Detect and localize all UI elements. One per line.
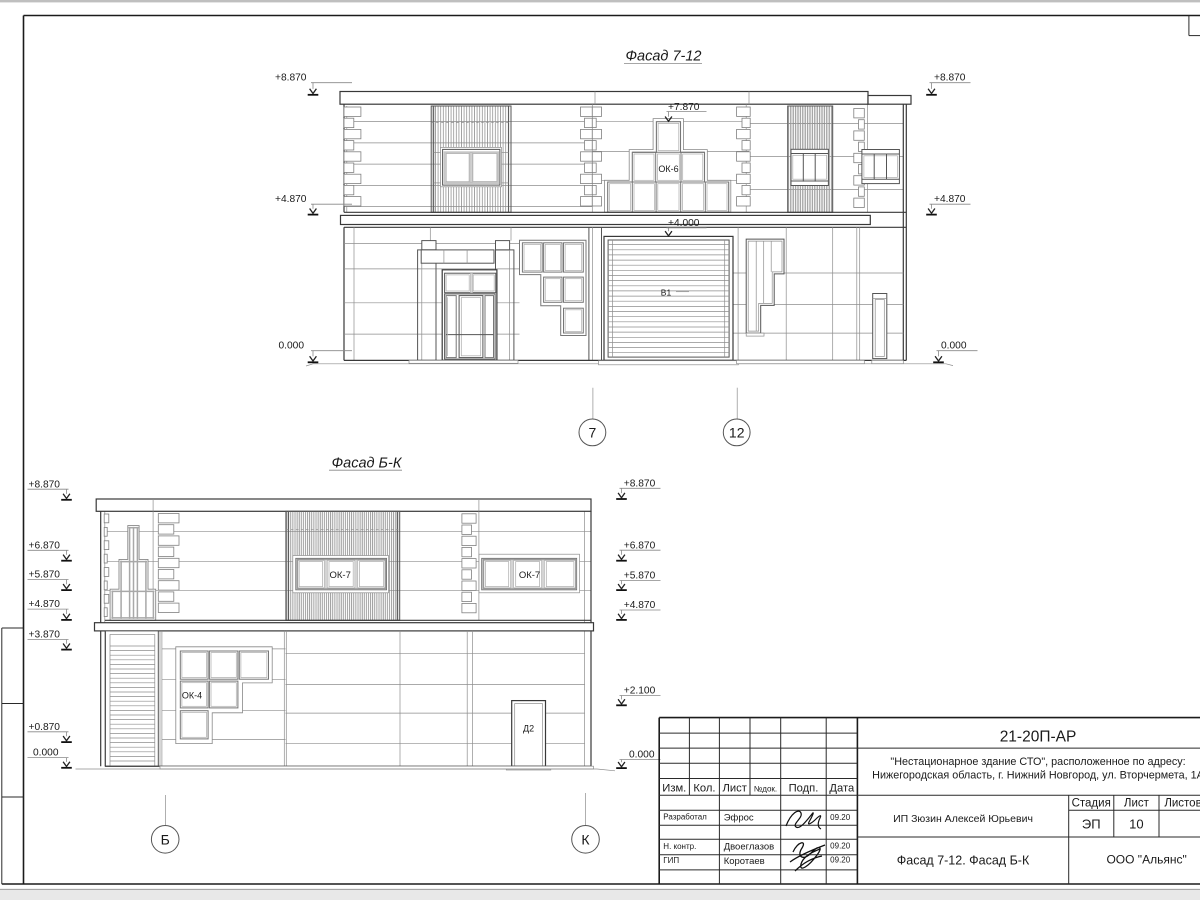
svg-text:ОК-4: ОК-4 — [182, 691, 202, 701]
svg-text:Фасад 7-12: Фасад 7-12 — [626, 49, 702, 65]
svg-text:Листов: Листов — [1164, 798, 1200, 810]
svg-text:Кол.: Кол. — [693, 783, 715, 795]
svg-text:10: 10 — [1129, 817, 1143, 832]
svg-text:+4.870: +4.870 — [934, 194, 966, 205]
svg-text:+4.000: +4.000 — [668, 218, 700, 229]
svg-text:0.000: 0.000 — [33, 748, 59, 759]
svg-text:ОК-7: ОК-7 — [330, 570, 351, 581]
svg-text:+5.870: +5.870 — [624, 571, 656, 582]
svg-text:Фасад Б-К: Фасад Б-К — [332, 456, 403, 472]
svg-text:ООО "Альянс": ООО "Альянс" — [1106, 853, 1186, 867]
svg-text:Н. контр.: Н. контр. — [663, 842, 696, 851]
svg-text:+0.870: +0.870 — [29, 722, 61, 733]
svg-text:Фасад 7-12. Фасад Б-К: Фасад 7-12. Фасад Б-К — [897, 854, 1030, 868]
svg-text:+6.870: +6.870 — [29, 540, 61, 551]
svg-text:7: 7 — [589, 424, 597, 440]
svg-text:+8.870: +8.870 — [29, 479, 61, 490]
svg-text:+3.870: +3.870 — [29, 630, 61, 641]
svg-text:Разработал: Разработал — [663, 813, 707, 822]
svg-text:+2.100: +2.100 — [624, 686, 656, 697]
svg-text:Лист: Лист — [723, 783, 747, 795]
svg-text:09.20: 09.20 — [830, 855, 851, 864]
svg-text:Двоеглазов: Двоеглазов — [724, 842, 775, 853]
svg-text:+8.870: +8.870 — [624, 478, 656, 489]
svg-text:09.20: 09.20 — [830, 813, 851, 822]
svg-text:Изм.: Изм. — [662, 783, 686, 795]
svg-text:К: К — [581, 831, 590, 847]
svg-text:Подп.: Подп. — [789, 783, 819, 795]
svg-text:Стадия: Стадия — [1072, 798, 1111, 810]
svg-text:+6.870: +6.870 — [624, 540, 656, 551]
svg-text:Б: Б — [161, 831, 170, 847]
svg-text:Лист: Лист — [1124, 798, 1150, 810]
svg-text:ГИП: ГИП — [663, 856, 679, 865]
svg-text:+4.870: +4.870 — [624, 600, 656, 611]
svg-text:+8.870: +8.870 — [934, 73, 966, 84]
svg-text:В1: В1 — [661, 287, 672, 297]
svg-text:0.000: 0.000 — [941, 341, 967, 352]
svg-text:ОК-6: ОК-6 — [658, 164, 678, 174]
svg-text:"Нестационарное здание СТО", р: "Нестационарное здание СТО", расположенн… — [890, 756, 1185, 768]
svg-text:+4.870: +4.870 — [275, 194, 307, 205]
svg-text:12: 12 — [729, 424, 745, 440]
svg-text:Дата: Дата — [829, 783, 855, 795]
svg-text:Эфрос: Эфрос — [724, 812, 754, 823]
svg-text:ИП Зюзин Алексей Юрьевич: ИП Зюзин Алексей Юрьевич — [893, 813, 1033, 825]
svg-text:ОК-7: ОК-7 — [519, 570, 540, 581]
svg-text:+4.870: +4.870 — [29, 599, 61, 610]
svg-text:+5.870: +5.870 — [29, 570, 61, 581]
svg-text:21-20П-АР: 21-20П-АР — [1000, 729, 1077, 746]
svg-text:№док.: №док. — [754, 784, 777, 793]
svg-text:Коротаев: Коротаев — [724, 856, 765, 867]
svg-text:Нижегородская область, г. Нижн: Нижегородская область, г. Нижний Новгоро… — [872, 769, 1200, 781]
svg-text:0.000: 0.000 — [279, 341, 305, 352]
svg-text:0.000: 0.000 — [629, 750, 655, 761]
svg-text:+8.870: +8.870 — [275, 73, 307, 84]
svg-text:Д2: Д2 — [523, 724, 534, 734]
svg-text:ЭП: ЭП — [1082, 817, 1101, 832]
svg-text:09.20: 09.20 — [830, 842, 851, 851]
